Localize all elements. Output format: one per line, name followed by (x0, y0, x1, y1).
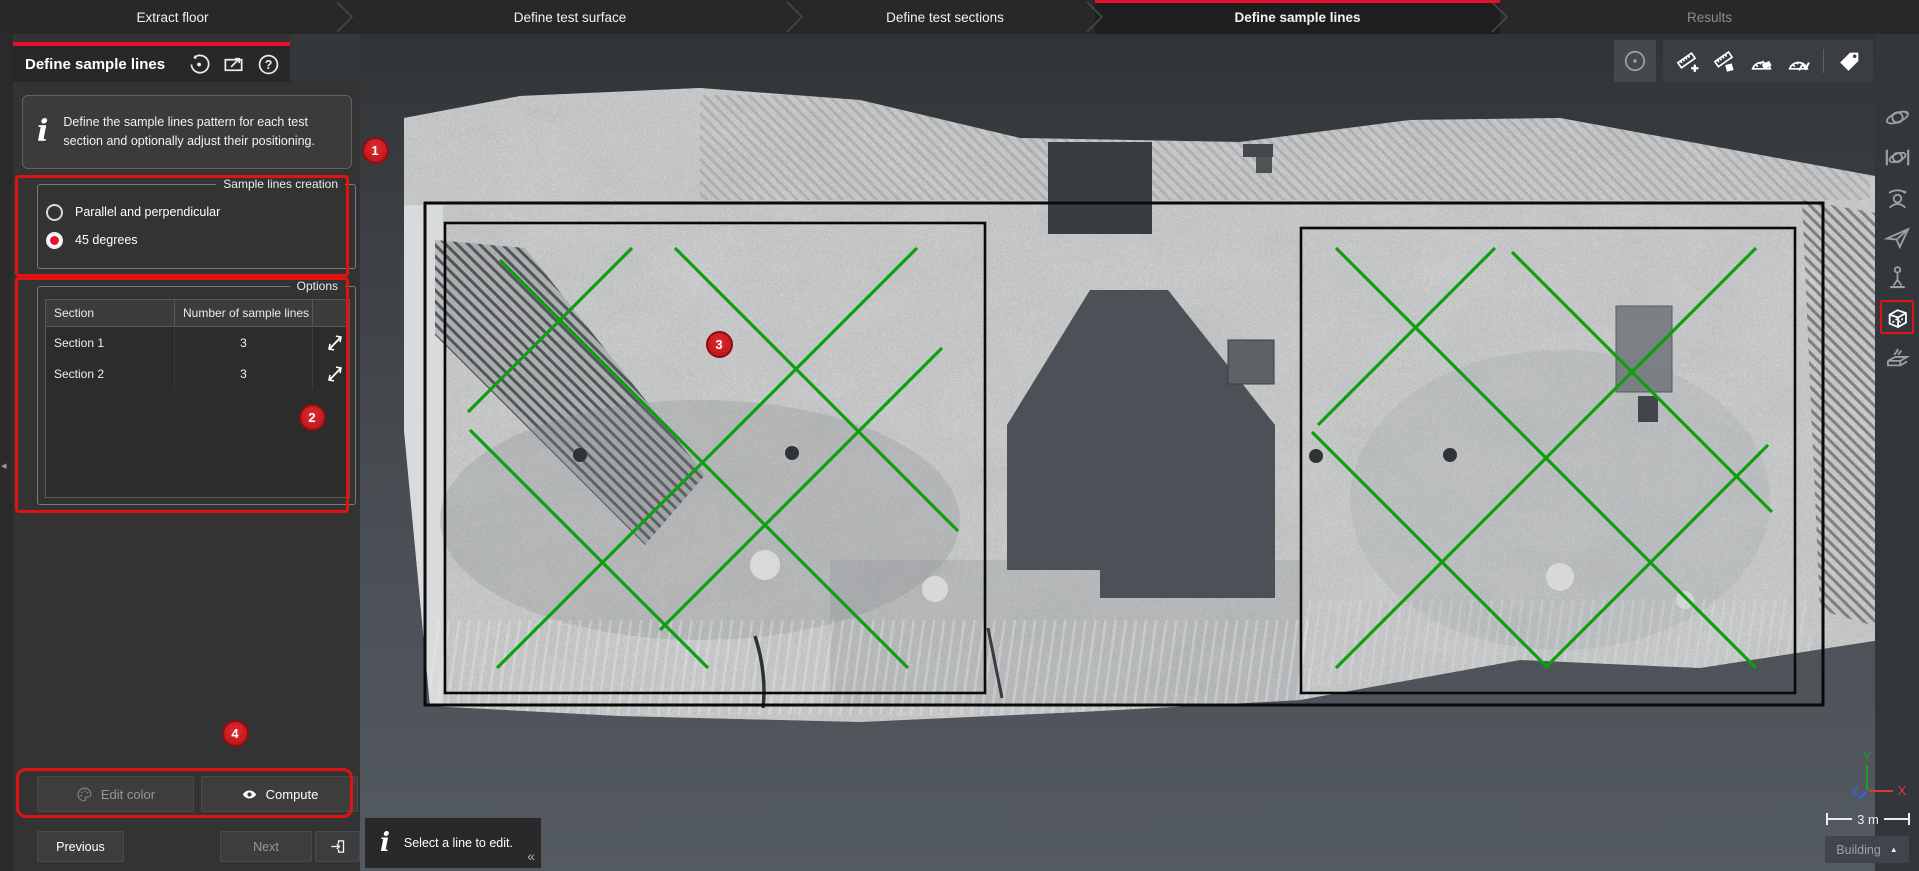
scale-label: 3 m (1852, 813, 1884, 826)
point-reference-icon[interactable] (1614, 40, 1656, 82)
application-window: Extract floorDefine test surfaceDefine t… (0, 0, 1919, 871)
panel-collapse-arrow-icon[interactable]: ◂ (1, 459, 7, 472)
reverse-line-direction-icon[interactable] (313, 358, 349, 389)
viewport-3d[interactable]: Y X Z 3 m Building ▲ i Select a line to … (360, 34, 1919, 871)
angle-eraser-icon[interactable] (1744, 44, 1778, 78)
chevron-up-icon: ▲ (1890, 845, 1898, 854)
panel-header-notch (290, 34, 360, 80)
palette-icon (76, 786, 93, 803)
radio-selected-icon[interactable] (46, 232, 63, 249)
info-icon: i (380, 830, 390, 856)
previous-label: Previous (56, 840, 105, 854)
axis-z-label: Z (1851, 785, 1858, 799)
radio-label: 45 degrees (75, 233, 138, 247)
measurement-toolbar (1663, 40, 1873, 82)
orbit-icon[interactable] (1880, 100, 1914, 134)
sections-table: Section Number of sample lines Section 1… (45, 299, 350, 498)
scale-line (1884, 818, 1908, 820)
radio-option-parallel-and-perpendicular[interactable]: Parallel and perpendicular (46, 199, 220, 225)
compute-button[interactable]: Compute (201, 776, 358, 812)
workflow-tab-bar: Extract floorDefine test surfaceDefine t… (0, 0, 1919, 34)
walk-icon[interactable] (1880, 260, 1914, 294)
next-button[interactable]: Next (220, 831, 312, 862)
next-label: Next (253, 840, 279, 854)
angle-polyline-icon[interactable] (1781, 44, 1815, 78)
tab-define-sample-lines[interactable]: Define sample lines (1095, 0, 1500, 34)
popout-panel-icon[interactable] (220, 51, 246, 77)
radio-option-45-degrees[interactable]: 45 degrees (46, 227, 138, 253)
column-header-section[interactable]: Section (46, 300, 175, 326)
radio-unselected-icon[interactable] (46, 204, 63, 221)
add-measurement-icon[interactable] (1670, 44, 1704, 78)
navigation-toolbar (1875, 34, 1919, 871)
panel-info-box: i Define the sample lines pattern for ea… (22, 95, 352, 169)
panel-header: Define sample lines ? (13, 42, 290, 82)
measure-patch-icon[interactable] (1707, 44, 1741, 78)
info-icon: i (37, 117, 48, 147)
history-reset-icon[interactable] (185, 51, 211, 77)
hint-bar: i Select a line to edit. « (365, 818, 541, 868)
edit-color-button[interactable]: Edit color (37, 776, 194, 812)
cell-section-name[interactable]: Section 1 (46, 327, 175, 358)
edit-color-label: Edit color (101, 787, 155, 802)
options-group: Options Section Number of sample lines S… (37, 286, 356, 505)
collapse-hint-icon[interactable]: « (527, 848, 535, 864)
group-legend: Sample lines creation (216, 177, 345, 191)
table-row-section-1[interactable]: Section 13 (46, 327, 349, 358)
look-around-icon[interactable] (1880, 180, 1914, 214)
cell-sample-line-count[interactable]: 3 (175, 327, 313, 358)
toolbar-divider (1823, 49, 1824, 73)
constrained-orbit-icon[interactable] (1880, 140, 1914, 174)
view-cube-icon[interactable] (1880, 300, 1914, 334)
exit-workflow-button[interactable] (315, 831, 360, 862)
panel-edge-strip: ◂ (0, 34, 13, 871)
sections-table-header: Section Number of sample lines (46, 300, 349, 327)
axis-gizmo: Y X Z (1838, 750, 1914, 806)
group-legend: Options (290, 279, 345, 293)
info-text: Define the sample lines pattern for each… (63, 113, 321, 151)
viewport-canvas[interactable] (360, 34, 1919, 871)
tab-define-test-sections[interactable]: Define test sections (795, 0, 1095, 34)
eye-icon (241, 786, 258, 803)
tab-extract-floor[interactable]: Extract floor (0, 0, 345, 34)
table-row-section-2[interactable]: Section 23 (46, 358, 349, 389)
svg-text:?: ? (264, 57, 272, 71)
scale-bar: 3 m (1826, 811, 1910, 827)
tag-icon[interactable] (1832, 44, 1866, 78)
scale-tick-right (1908, 813, 1910, 825)
axis-y-label: Y (1863, 750, 1872, 764)
define-sample-lines-panel: Define sample lines ? i Def (13, 34, 360, 871)
exit-workflow-icon (329, 838, 346, 855)
sample-lines-creation-group: Sample lines creation Parallel and perpe… (37, 184, 356, 269)
previous-button[interactable]: Previous (37, 831, 124, 862)
tab-results[interactable]: Results (1500, 0, 1919, 34)
column-header-number-of-sample-lines[interactable]: Number of sample lines (175, 300, 313, 326)
cell-sample-line-count[interactable]: 3 (175, 358, 313, 389)
building-label: Building (1836, 843, 1880, 857)
tab-define-test-surface[interactable]: Define test surface (345, 0, 795, 34)
point-cloud-floor[interactable] (360, 34, 1919, 871)
column-header-actions (313, 300, 349, 326)
help-icon[interactable]: ? (255, 51, 281, 77)
panel-title: Define sample lines (13, 56, 185, 73)
clipping-box-icon[interactable] (1880, 340, 1914, 374)
radio-label: Parallel and perpendicular (75, 205, 220, 219)
reverse-line-direction-icon[interactable] (313, 327, 349, 358)
fly-icon[interactable] (1880, 220, 1914, 254)
hint-text: Select a line to edit. (404, 836, 513, 850)
building-dropdown[interactable]: Building ▲ (1825, 836, 1909, 863)
axis-x-label: X (1898, 783, 1907, 798)
cell-section-name[interactable]: Section 2 (46, 358, 175, 389)
compute-label: Compute (266, 787, 319, 802)
scale-line (1828, 818, 1852, 820)
